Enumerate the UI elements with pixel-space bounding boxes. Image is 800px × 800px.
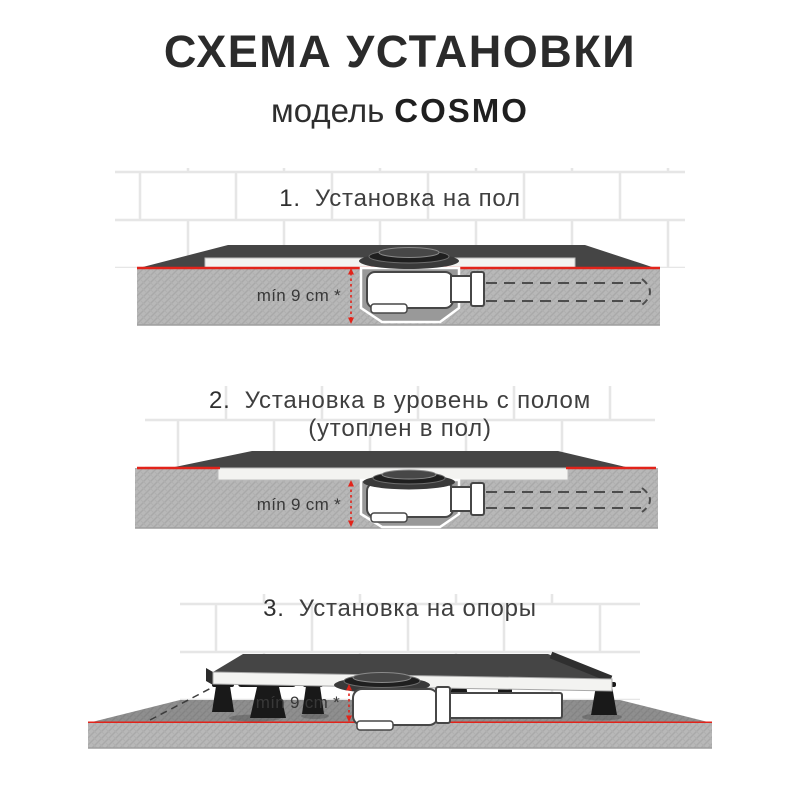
installation-scheme-page: СХЕМА УСТАНОВКИ модельCOSMO 1.Установка … [0, 0, 800, 800]
model-subtitle: модельCOSMO [0, 92, 800, 130]
header: СХЕМА УСТАНОВКИ модельCOSMO [0, 26, 800, 130]
page-title: СХЕМА УСТАНОВКИ [0, 26, 800, 78]
section-2-subtitle: (утоплен в пол) [308, 415, 492, 442]
dimension-label: mín 9 cm * [257, 286, 341, 305]
diagram-install-flush: 2.Установка в уровень с полом (утоплен в… [0, 380, 800, 550]
model-name: COSMO [394, 92, 529, 129]
diagram-install-on-floor: 1.Установка на пол [0, 160, 800, 340]
section-3-title: 3.Установка на опоры [263, 595, 537, 622]
diagram-install-on-supports: 3.Установка на опоры [0, 588, 800, 788]
dimension-label: mín 9 cm * [256, 693, 340, 712]
section-1-title: 1.Установка на пол [279, 185, 521, 212]
section-2-title: 2.Установка в уровень с полом [209, 387, 591, 414]
model-label: модель [271, 92, 384, 129]
dimension-label: mín 9 cm * [257, 495, 341, 514]
floor-front-face [88, 723, 712, 748]
